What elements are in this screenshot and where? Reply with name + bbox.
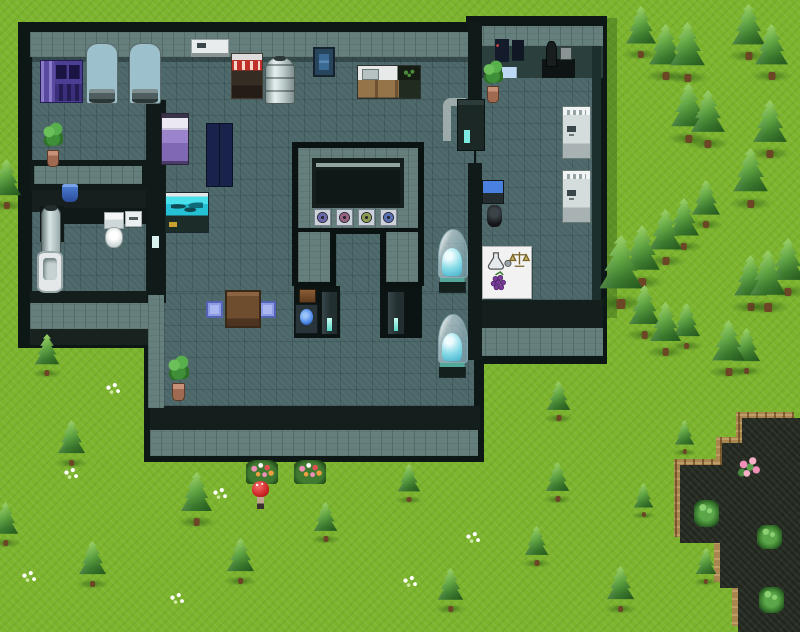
shower-column-sprite <box>41 206 61 253</box>
hall-computer-sprite[interactable] <box>295 304 318 334</box>
white-flowers-sprite <box>464 531 482 545</box>
pine-tree <box>606 566 635 612</box>
pine-tree <box>78 541 107 587</box>
white-flowers-sprite <box>104 382 122 396</box>
object-layer <box>0 0 800 632</box>
pine-tree <box>749 250 787 312</box>
shelf-red-sprite <box>231 53 263 99</box>
pine-tree <box>711 320 746 376</box>
purple-console-sprite <box>40 60 83 103</box>
green-bush-sprite <box>694 500 719 527</box>
white-flowers-sprite <box>62 467 80 481</box>
cushion-blue-sprite <box>206 301 223 318</box>
tree-foliage <box>695 548 717 580</box>
sign-icons <box>483 247 531 298</box>
tree-foliage <box>57 420 86 460</box>
white-flowers-sprite <box>211 487 229 501</box>
pine-tree <box>633 483 654 517</box>
pine-tree <box>57 420 86 466</box>
capsule-sprite <box>438 229 466 293</box>
kitchen-counter-sprite <box>357 65 421 99</box>
tree-foliage <box>752 100 788 151</box>
shelf-brown-small-sprite <box>299 289 316 303</box>
pine-tree <box>0 502 19 546</box>
door-terminal-sprite[interactable] <box>387 291 405 335</box>
tree-foliage <box>606 566 635 606</box>
tree-foliage <box>524 526 549 561</box>
pine-tree <box>649 302 682 356</box>
bathtub-sprite <box>37 251 63 293</box>
tree-foliage <box>0 159 22 203</box>
tree-foliage <box>749 250 787 305</box>
plant-pot-sprite <box>483 60 503 103</box>
flower-bed-sprite <box>294 460 326 484</box>
pine-tree <box>0 159 22 209</box>
pine-tree <box>754 24 789 80</box>
tree-foliage <box>180 472 213 520</box>
boiler-sprite <box>265 57 295 104</box>
tree-foliage <box>397 464 421 497</box>
tree-foliage <box>669 22 706 75</box>
pine-tree <box>674 420 695 454</box>
toilet-sprite <box>103 212 123 248</box>
game-viewport[interactable] <box>0 0 800 632</box>
white-flowers-sprite <box>168 592 186 606</box>
office-desk-sprite <box>482 180 508 227</box>
tree-foliage <box>546 381 571 416</box>
tree-foliage <box>545 462 570 497</box>
pine-tree <box>180 472 213 526</box>
sign-white-sprite[interactable] <box>482 246 532 299</box>
vent-white-sprite <box>191 39 229 57</box>
tree-foliage <box>313 502 338 537</box>
pine-tree <box>226 538 255 584</box>
pine-tree <box>669 22 706 82</box>
capsule-sprite <box>438 314 466 378</box>
red-npc-sprite[interactable] <box>252 481 269 509</box>
pine-tree <box>732 148 769 208</box>
pine-tree <box>34 334 60 376</box>
tree-foliage <box>649 302 682 350</box>
pine-tree <box>690 90 726 148</box>
water-tank-sprite <box>129 43 161 104</box>
tree-foliage <box>34 334 60 371</box>
lab-desk-sprite <box>542 41 575 78</box>
pine-tree <box>545 462 570 502</box>
pine-tree <box>313 502 338 542</box>
white-flowers-sprite <box>401 575 419 589</box>
tree-foliage <box>0 502 19 541</box>
tree-foliage <box>226 538 255 578</box>
door-terminal-sprite[interactable] <box>321 291 338 335</box>
tree-foliage <box>674 420 695 450</box>
water-tank-sprite <box>86 43 118 104</box>
pail-blue-sprite <box>62 184 78 202</box>
locker-blue-sprite <box>206 123 233 187</box>
console-white-sprite <box>562 170 591 223</box>
tree-foliage <box>754 24 789 73</box>
pine-tree <box>524 526 549 566</box>
pipe-machine-sprite <box>441 96 485 149</box>
pine-tree <box>695 548 717 584</box>
dispenser-sprite <box>125 211 142 227</box>
plant-pot-sprite <box>43 122 63 167</box>
green-bush-sprite <box>759 587 784 613</box>
white-flowers-sprite <box>20 570 38 584</box>
table-brown-sprite <box>225 290 261 328</box>
green-bush-sprite <box>757 525 782 549</box>
tree-foliage <box>690 90 726 141</box>
tree-foliage <box>711 320 746 369</box>
tree-foliage <box>78 541 107 581</box>
tree-foliage <box>732 148 769 201</box>
tree-foliage <box>633 483 654 513</box>
pink-flowers-sprite <box>736 455 763 482</box>
tree-foliage <box>437 568 464 607</box>
pine-tree <box>437 568 464 612</box>
pine-tree <box>546 381 571 421</box>
plant-pot-sprite <box>168 355 189 401</box>
pine-tree <box>397 464 421 502</box>
bed-purple-sprite <box>161 113 189 165</box>
aquarium-sprite <box>165 192 209 233</box>
console-white-sprite <box>562 106 591 159</box>
poster-blue-sprite <box>313 47 335 77</box>
cushion-blue-sprite <box>259 301 276 318</box>
